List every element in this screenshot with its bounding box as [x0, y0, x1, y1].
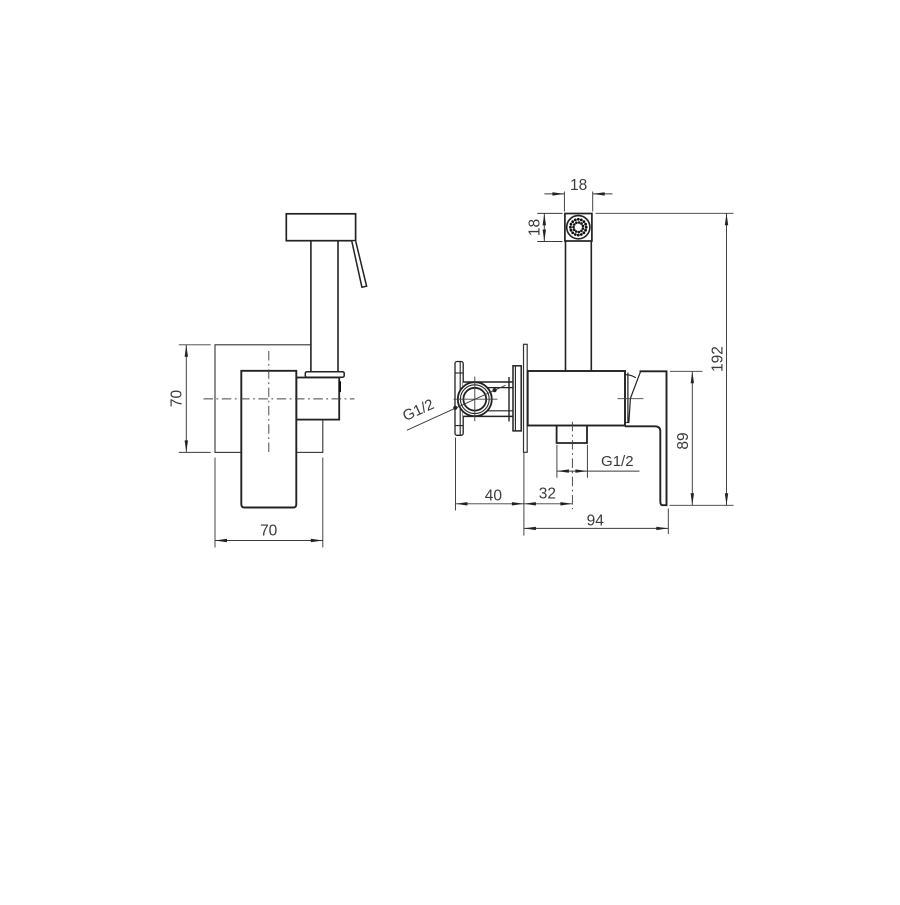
- svg-text:18: 18: [570, 177, 587, 194]
- svg-text:70: 70: [260, 523, 278, 540]
- svg-text:40: 40: [485, 488, 503, 505]
- svg-text:18: 18: [527, 219, 544, 236]
- svg-text:94: 94: [587, 512, 605, 529]
- svg-text:89: 89: [675, 432, 692, 449]
- svg-text:32: 32: [539, 486, 556, 503]
- svg-text:70: 70: [169, 390, 186, 408]
- svg-text:G1/2: G1/2: [601, 453, 634, 470]
- svg-text:192: 192: [710, 346, 727, 372]
